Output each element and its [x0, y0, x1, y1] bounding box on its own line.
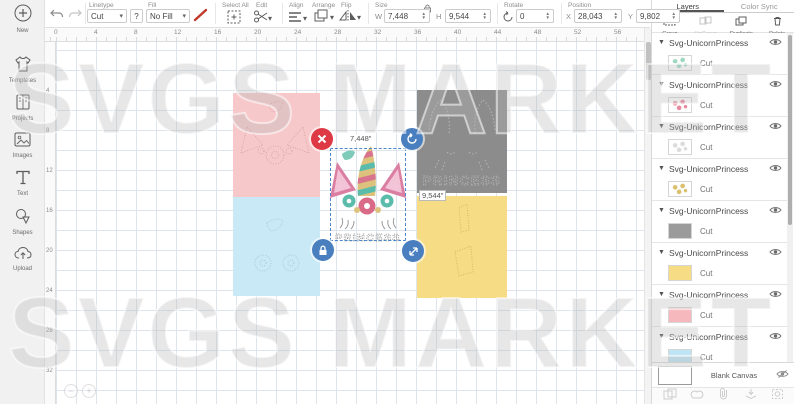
layer-group: ▼Svg-UnicornPrincessCut	[652, 201, 788, 243]
chevron-down-icon: ▾	[182, 12, 186, 20]
chevron-down-icon[interactable]: ▼	[658, 207, 665, 214]
panel-scrollbar[interactable]	[787, 33, 793, 362]
selection-height-label: 9,544"	[419, 190, 446, 201]
ruler-number: 24	[46, 288, 53, 294]
ruler-number: 0	[54, 29, 58, 36]
position-x-label: X	[566, 12, 571, 21]
arrange-icon[interactable]: ▾	[314, 9, 338, 28]
rotate-handle[interactable]	[401, 128, 423, 150]
layer-row[interactable]: ▼Svg-UnicornPrincess	[652, 243, 788, 262]
layer-thumbnail	[668, 349, 692, 362]
align-icon[interactable]: ▾	[288, 10, 310, 28]
text-icon	[15, 170, 31, 190]
flip-icon[interactable]: ▾	[338, 9, 364, 28]
weld-icon[interactable]	[690, 387, 704, 404]
chevron-down-icon[interactable]: ▼	[658, 249, 665, 256]
layer-sub-row[interactable]: Cut	[652, 304, 788, 326]
delete-handle[interactable]	[311, 128, 333, 150]
layer-sub-row[interactable]: Cut	[652, 220, 788, 242]
sidebar-item-upload[interactable]: Upload	[0, 246, 45, 272]
layer-row[interactable]: ▼Svg-UnicornPrincess	[652, 159, 788, 178]
chevron-down-icon[interactable]: ▼	[658, 81, 665, 88]
eye-icon[interactable]	[769, 118, 782, 136]
eye-icon[interactable]	[769, 328, 782, 346]
layer-operation: Cut	[700, 311, 712, 320]
zoom-controls: − +	[64, 384, 96, 398]
vertical-ruler: 48121620242832	[45, 42, 56, 404]
linetype-select[interactable]: Cut▾	[87, 9, 127, 23]
layer-name: Svg-UnicornPrincess	[669, 290, 765, 300]
layer-operation: Cut	[700, 353, 712, 362]
stepper-icon[interactable]: ▲▼	[483, 12, 487, 20]
size-h-label: H	[436, 12, 441, 21]
sidebar-item-label: Projects	[0, 116, 45, 122]
layer-operation: Cut	[700, 269, 712, 278]
cyan-material-rect[interactable]	[233, 197, 320, 296]
layer-group: ▼Svg-UnicornPrincessCut	[652, 285, 788, 327]
horizontal-ruler: 048121620242832364044485256	[45, 28, 651, 42]
left-sidebar: New Templates Projects Images Text	[0, 0, 45, 404]
rotate-icon	[502, 10, 514, 28]
stepper-icon[interactable]: ▲▼	[672, 12, 676, 20]
image-icon	[14, 132, 31, 152]
stepper-icon[interactable]: ▲▼	[614, 12, 618, 20]
layer-thumbnail	[668, 97, 692, 113]
ruler-number: 24	[294, 29, 301, 36]
size-label: Size	[375, 2, 388, 9]
rotate-label: Rotate	[504, 2, 523, 9]
layer-operation: Cut	[700, 185, 712, 194]
layer-operation: Cut	[700, 227, 712, 236]
eye-icon[interactable]	[769, 286, 782, 304]
ruler-number: 16	[214, 29, 221, 36]
eye-icon[interactable]	[769, 34, 782, 52]
chevron-down-icon[interactable]: ▼	[658, 333, 665, 340]
layer-sub-row[interactable]: Cut	[652, 262, 788, 284]
chevron-down-icon: ▾	[119, 12, 123, 20]
zoom-in-button[interactable]: +	[82, 384, 96, 398]
layer-name: Svg-UnicornPrincess	[669, 332, 765, 342]
ruler-number: 20	[46, 248, 53, 254]
ungroup-icon	[699, 16, 712, 26]
eye-icon[interactable]	[769, 244, 782, 262]
panel-scrollbar-thumb[interactable]	[788, 35, 792, 225]
flatten-icon[interactable]	[744, 387, 758, 404]
svg-text:PRINCESS: PRINCESS	[423, 173, 501, 188]
select-all-label: Select All	[222, 2, 249, 9]
layer-name: Svg-UnicornPrincess	[669, 248, 765, 258]
duplicate-button[interactable]: Duplicate	[724, 13, 760, 32]
boolean-tools-bar	[652, 387, 794, 404]
undo-icon[interactable]	[50, 7, 64, 25]
ruler-number: 12	[46, 168, 53, 174]
layer-operation: Cut	[700, 101, 712, 110]
edit-label: Edit	[256, 2, 267, 9]
linetype-label: Linetype	[89, 2, 114, 9]
layer-row[interactable]: ▼Svg-UnicornPrincess	[652, 201, 788, 220]
layer-group: ▼Svg-UnicornPrincessCut	[652, 117, 788, 159]
sidebar-item-label: Text	[0, 191, 45, 197]
selection-box[interactable]	[330, 148, 406, 241]
layer-thumbnail	[668, 265, 692, 281]
redo-icon[interactable]	[68, 7, 82, 25]
design-canvas[interactable]: 048121620242832364044485256 481216202428…	[45, 28, 651, 404]
tshirt-icon	[14, 56, 32, 77]
duplicate-icon	[735, 16, 747, 26]
selection-width-label: 7,448"	[348, 134, 373, 143]
sidebar-item-text[interactable]: Text	[0, 170, 45, 197]
stepper-icon[interactable]: ▲▼	[422, 12, 426, 20]
blank-canvas-label: Blank Canvas	[700, 371, 768, 380]
layer-thumbnail	[668, 223, 692, 239]
gray-motif: PRINCESS	[417, 90, 507, 193]
trash-icon	[773, 16, 782, 26]
ruler-number: 44	[494, 29, 501, 36]
ruler-number: 32	[374, 29, 381, 36]
canvas-scrollbar[interactable]	[644, 28, 651, 404]
cloud-upload-icon	[14, 246, 32, 265]
app-window: New Templates Projects Images Text	[0, 0, 794, 404]
blank-canvas-row[interactable]: Blank Canvas	[652, 362, 794, 387]
chevron-down-icon[interactable]: ▼	[658, 291, 665, 298]
layer-row[interactable]: ▼Svg-UnicornPrincess	[652, 117, 788, 136]
pink-material-rect[interactable]	[233, 93, 320, 197]
linetype-help-button[interactable]: ?	[130, 9, 143, 23]
sidebar-item-label: Images	[0, 153, 45, 159]
eye-icon[interactable]	[769, 160, 782, 178]
tab-color-sync[interactable]: Color Sync	[724, 0, 794, 12]
layer-name: Svg-UnicornPrincess	[669, 38, 765, 48]
layer-name: Svg-UnicornPrincess	[669, 122, 765, 132]
sidebar-item-label: New	[0, 28, 45, 34]
svg-text:▾: ▾	[330, 13, 334, 22]
ruler-number: 16	[46, 208, 53, 214]
ruler-number: 8	[134, 29, 138, 36]
top-toolbar: Linetype Cut▾ ? Fill No Fill▾ Select All…	[45, 0, 650, 28]
layer-group: ▼Svg-UnicornPrincessCut	[652, 75, 788, 117]
notebook-icon	[15, 94, 31, 115]
canvas-grid: PRINCESS	[56, 42, 644, 404]
position-y-input[interactable]: 9,802▲▼	[636, 9, 680, 23]
chevron-down-icon[interactable]: ▼	[658, 165, 665, 172]
arrange-label: Arrange	[312, 2, 335, 9]
layer-name: Svg-UnicornPrincess	[669, 80, 765, 90]
sidebar-item-label: Shapes	[0, 230, 45, 236]
svg-text:▾: ▾	[303, 14, 307, 23]
size-width-input[interactable]: 7,448▲▼	[384, 9, 430, 23]
layer-operation: Cut	[700, 143, 712, 152]
ruler-number: 48	[534, 29, 541, 36]
ruler-number: 32	[46, 368, 53, 374]
position-x-input[interactable]: 28,043▲▼	[574, 9, 622, 23]
ruler-number: 20	[254, 29, 261, 36]
pink-motif	[233, 93, 320, 197]
position-label: Position	[568, 2, 591, 9]
layer-thumbnail	[668, 307, 692, 323]
attach-icon[interactable]	[718, 387, 730, 404]
layer-thumbnail	[668, 181, 692, 197]
size-height-input[interactable]: 9,544▲▼	[445, 9, 491, 23]
sidebar-item-label: Upload	[0, 266, 45, 272]
size-w-label: W	[375, 12, 382, 21]
shapes-icon	[14, 208, 31, 229]
flip-label: Flip	[341, 2, 351, 9]
layer-thumbnail	[668, 139, 692, 155]
gray-material-rect[interactable]: PRINCESS	[417, 90, 507, 193]
rotate-input[interactable]: 0▲▼	[516, 9, 554, 23]
ruler-number: 28	[46, 328, 53, 334]
ruler-number: 4	[94, 29, 98, 36]
layer-row[interactable]: ▼Svg-UnicornPrincess	[652, 285, 788, 304]
sidebar-item-projects[interactable]: Projects	[0, 94, 45, 122]
chevron-down-icon[interactable]: ▼	[658, 123, 665, 130]
layer-group: ▼Svg-UnicornPrincessCut	[652, 327, 788, 362]
align-label: Align	[289, 2, 303, 9]
layer-group: ▼Svg-UnicornPrincessCut	[652, 33, 788, 75]
sidebar-item-shapes[interactable]: Shapes	[0, 208, 45, 236]
ruler-number: 56	[614, 29, 621, 36]
layer-sub-row[interactable]: Cut	[652, 52, 788, 74]
sidebar-item-templates[interactable]: Templates	[0, 56, 45, 84]
ruler-number: 8	[46, 128, 49, 134]
layer-group: ▼Svg-UnicornPrincessCut	[652, 243, 788, 285]
layer-sub-row[interactable]: Cut	[652, 94, 788, 116]
eye-icon[interactable]	[769, 76, 782, 94]
blank-canvas-thumbnail	[658, 366, 692, 385]
sidebar-item-label: Templates	[0, 78, 45, 84]
cyan-motif	[233, 197, 320, 296]
sidebar-item-new[interactable]: New	[0, 4, 45, 34]
fill-select[interactable]: No Fill▾	[146, 9, 190, 23]
eye-off-icon[interactable]	[776, 366, 789, 384]
layer-row[interactable]: ▼Svg-UnicornPrincess	[652, 75, 788, 94]
ruler-number: 52	[574, 29, 581, 36]
ruler-number: 28	[334, 29, 341, 36]
lock-handle[interactable]	[312, 239, 334, 261]
sidebar-item-images[interactable]: Images	[0, 132, 45, 159]
svg-text:▾: ▾	[268, 14, 272, 23]
layer-sub-row[interactable]: Cut	[652, 346, 788, 362]
layer-sub-row[interactable]: Cut	[652, 136, 788, 158]
resize-handle[interactable]	[402, 240, 424, 262]
fill-label: Fill	[148, 2, 156, 9]
yellow-motif	[417, 196, 507, 298]
ruler-number: 4	[46, 88, 49, 94]
layer-row[interactable]: ▼Svg-UnicornPrincess	[652, 33, 788, 52]
layer-name: Svg-UnicornPrincess	[669, 206, 765, 216]
layer-sub-row[interactable]: Cut	[652, 178, 788, 200]
layer-operation: Cut	[700, 59, 712, 68]
contour-icon[interactable]	[771, 387, 784, 404]
layer-thumbnail	[668, 55, 692, 71]
ruler-number: 36	[414, 29, 421, 36]
select-all-icon[interactable]	[227, 10, 241, 29]
ruler-number: 40	[454, 29, 461, 36]
layer-row[interactable]: ▼Svg-UnicornPrincess	[652, 327, 788, 346]
layer-name: Svg-UnicornPrincess	[669, 164, 765, 174]
zoom-out-button[interactable]: −	[64, 384, 78, 398]
yellow-material-rect[interactable]	[417, 196, 507, 298]
position-y-label: Y	[628, 12, 633, 21]
new-plus-icon	[14, 4, 32, 27]
pen-icon[interactable]	[193, 8, 209, 27]
stepper-icon[interactable]: ▲▼	[546, 12, 550, 20]
edit-icon[interactable]: ▾	[253, 9, 275, 29]
chevron-down-icon[interactable]: ▼	[658, 39, 665, 46]
eye-icon[interactable]	[769, 202, 782, 220]
svg-text:▾: ▾	[357, 13, 361, 22]
layer-group: ▼Svg-UnicornPrincessCut	[652, 159, 788, 201]
layers-list: ▼Svg-UnicornPrincessCut▼Svg-UnicornPrinc…	[652, 33, 788, 362]
layers-panel: Layers Color Sync Group UnGroup Duplicat…	[651, 0, 794, 404]
slice-icon[interactable]	[663, 387, 677, 404]
ruler-number: 12	[174, 29, 181, 36]
delete-button[interactable]: Delete	[759, 13, 794, 32]
ungroup-button[interactable]: UnGroup	[688, 13, 724, 32]
